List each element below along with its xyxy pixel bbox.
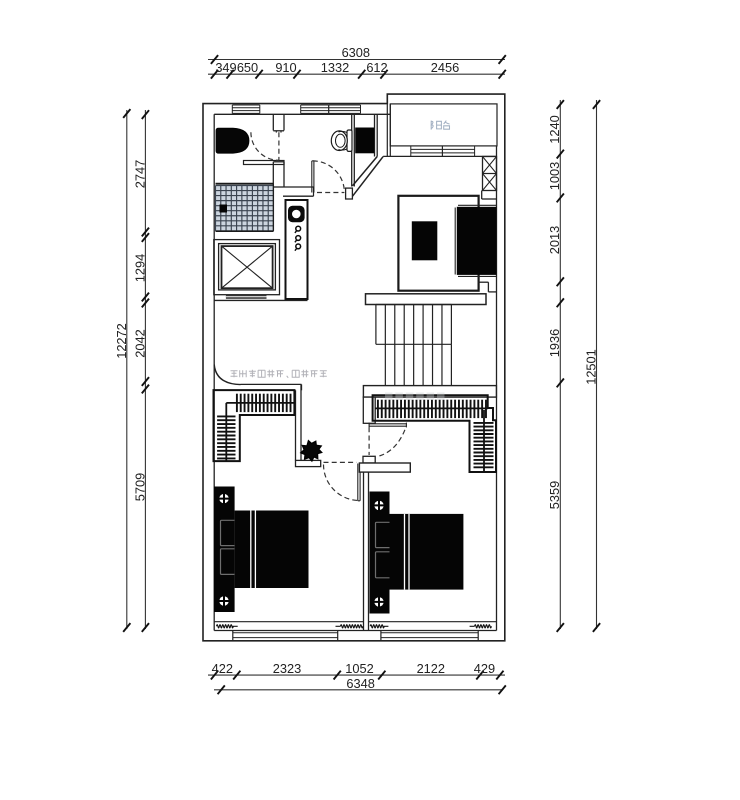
svg-text:1294: 1294 xyxy=(132,254,147,282)
svg-text:422: 422 xyxy=(212,661,233,676)
svg-text:650: 650 xyxy=(237,60,258,75)
svg-text:2042: 2042 xyxy=(132,329,147,357)
svg-text:2323: 2323 xyxy=(273,661,301,676)
svg-text:612: 612 xyxy=(366,60,387,75)
svg-text:6348: 6348 xyxy=(346,676,374,691)
svg-text:1240: 1240 xyxy=(547,115,562,143)
svg-text:1052: 1052 xyxy=(345,661,373,676)
svg-text:1332: 1332 xyxy=(321,60,349,75)
svg-text:1936: 1936 xyxy=(547,329,562,357)
svg-text:5359: 5359 xyxy=(547,481,562,509)
svg-text:2456: 2456 xyxy=(431,60,459,75)
svg-text:2122: 2122 xyxy=(417,661,445,676)
svg-text:12272: 12272 xyxy=(114,323,129,359)
svg-text:910: 910 xyxy=(275,60,296,75)
svg-text:6308: 6308 xyxy=(342,45,370,60)
svg-text:5709: 5709 xyxy=(132,473,147,501)
svg-text:349: 349 xyxy=(215,60,236,75)
svg-text:1003: 1003 xyxy=(547,162,562,190)
svg-text:2747: 2747 xyxy=(132,160,147,188)
svg-text:2013: 2013 xyxy=(547,226,562,254)
svg-text:12501: 12501 xyxy=(584,349,599,385)
svg-text:429: 429 xyxy=(474,661,495,676)
